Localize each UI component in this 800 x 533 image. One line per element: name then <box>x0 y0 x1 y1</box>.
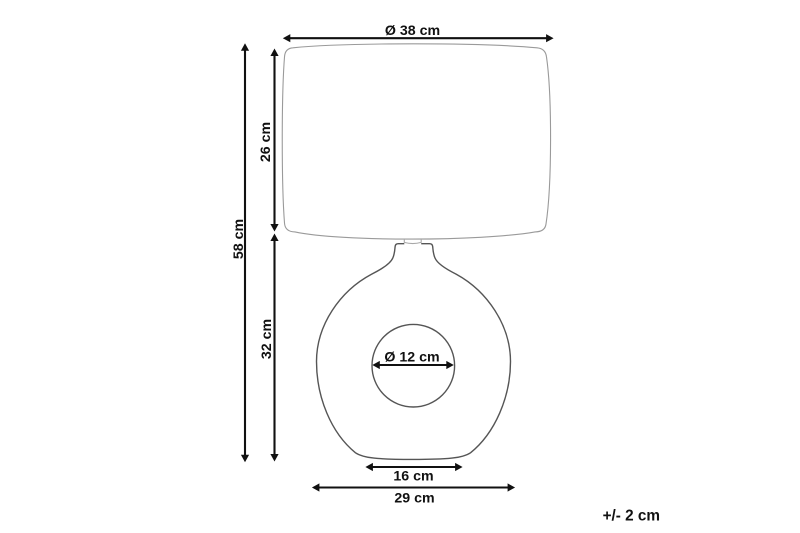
svg-text:32 cm: 32 cm <box>259 319 275 359</box>
svg-text:16 cm: 16 cm <box>393 469 433 485</box>
svg-text:26 cm: 26 cm <box>258 122 274 162</box>
svg-text:58 cm: 58 cm <box>231 219 247 259</box>
svg-text:Ø 12 cm: Ø 12 cm <box>384 350 439 366</box>
svg-text:+/- 2 cm: +/- 2 cm <box>603 507 660 524</box>
svg-text:Ø 38 cm: Ø 38 cm <box>385 23 440 39</box>
svg-text:29 cm: 29 cm <box>394 490 434 506</box>
